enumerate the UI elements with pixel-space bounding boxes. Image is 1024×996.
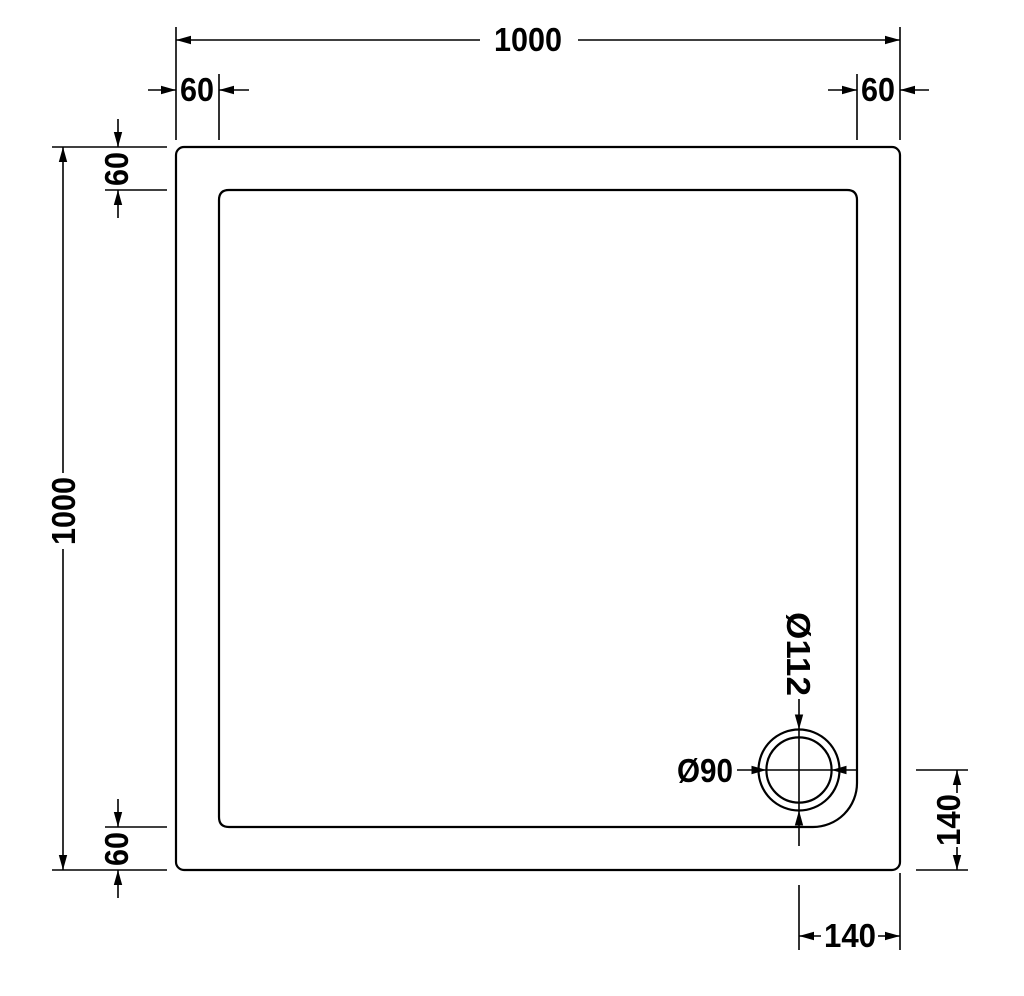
dim-drain-inner-diameter-label: Ø90	[677, 752, 733, 789]
technical-drawing-page: 1000 60 60 1000	[0, 0, 1024, 996]
dim-drain-outer-diameter-label: Ø112	[780, 612, 817, 696]
arrowhead-up-icon	[114, 190, 122, 205]
tray-outer-edge	[176, 147, 900, 870]
arrowhead-right-icon	[885, 36, 900, 44]
dim-drain-offset-bottom: 140	[799, 917, 900, 954]
dim-overall-width-label: 1000	[494, 21, 562, 58]
arrowhead-down-icon	[953, 855, 961, 870]
dim-drain-inner-diameter: Ø90	[677, 752, 858, 789]
arrowhead-down-icon	[59, 855, 67, 870]
arrowhead-up-icon	[114, 870, 122, 885]
dim-overall-height: 1000	[45, 147, 82, 870]
dim-rim-margin-left-bottom-label: 60	[98, 832, 135, 866]
arrowhead-left-icon	[176, 36, 191, 44]
dim-drain-offset-right-label: 140	[930, 794, 967, 846]
arrowhead-right-icon	[842, 86, 857, 94]
dim-drain-offset-bottom-label: 140	[824, 917, 876, 954]
arrowhead-left-icon	[219, 86, 234, 94]
dim-rim-margin-top-right-label: 60	[861, 71, 895, 108]
dim-rim-margin-left-bottom: 60	[98, 799, 135, 898]
dim-rim-margin-top-left-label: 60	[180, 71, 214, 108]
dim-drain-outer-diameter: Ø112	[780, 612, 817, 846]
dim-drain-offset-right: 140	[930, 770, 967, 870]
arrowhead-left-icon	[900, 86, 915, 94]
dim-rim-margin-left-top: 60	[98, 119, 135, 218]
arrowhead-left-icon	[799, 932, 814, 940]
arrowhead-right-icon	[161, 86, 176, 94]
tray-inner-surface	[219, 190, 857, 827]
arrowhead-up-icon	[953, 770, 961, 785]
extension-lines	[52, 27, 968, 950]
shower-tray-dimension-drawing: 1000 60 60 1000	[0, 0, 1024, 996]
arrowhead-up-icon	[59, 147, 67, 162]
arrowhead-down-icon	[795, 715, 803, 730]
arrowhead-right-icon	[885, 932, 900, 940]
dim-rim-margin-top-right: 60	[828, 71, 929, 108]
tray-outlines	[176, 147, 900, 870]
arrowhead-down-icon	[114, 812, 122, 827]
dim-overall-width: 1000	[176, 21, 900, 58]
dim-rim-margin-top-left: 60	[148, 71, 249, 108]
dim-rim-margin-left-top-label: 60	[98, 152, 135, 186]
arrowhead-up-icon	[795, 811, 803, 826]
arrowhead-down-icon	[114, 132, 122, 147]
dim-overall-height-label: 1000	[45, 477, 82, 545]
